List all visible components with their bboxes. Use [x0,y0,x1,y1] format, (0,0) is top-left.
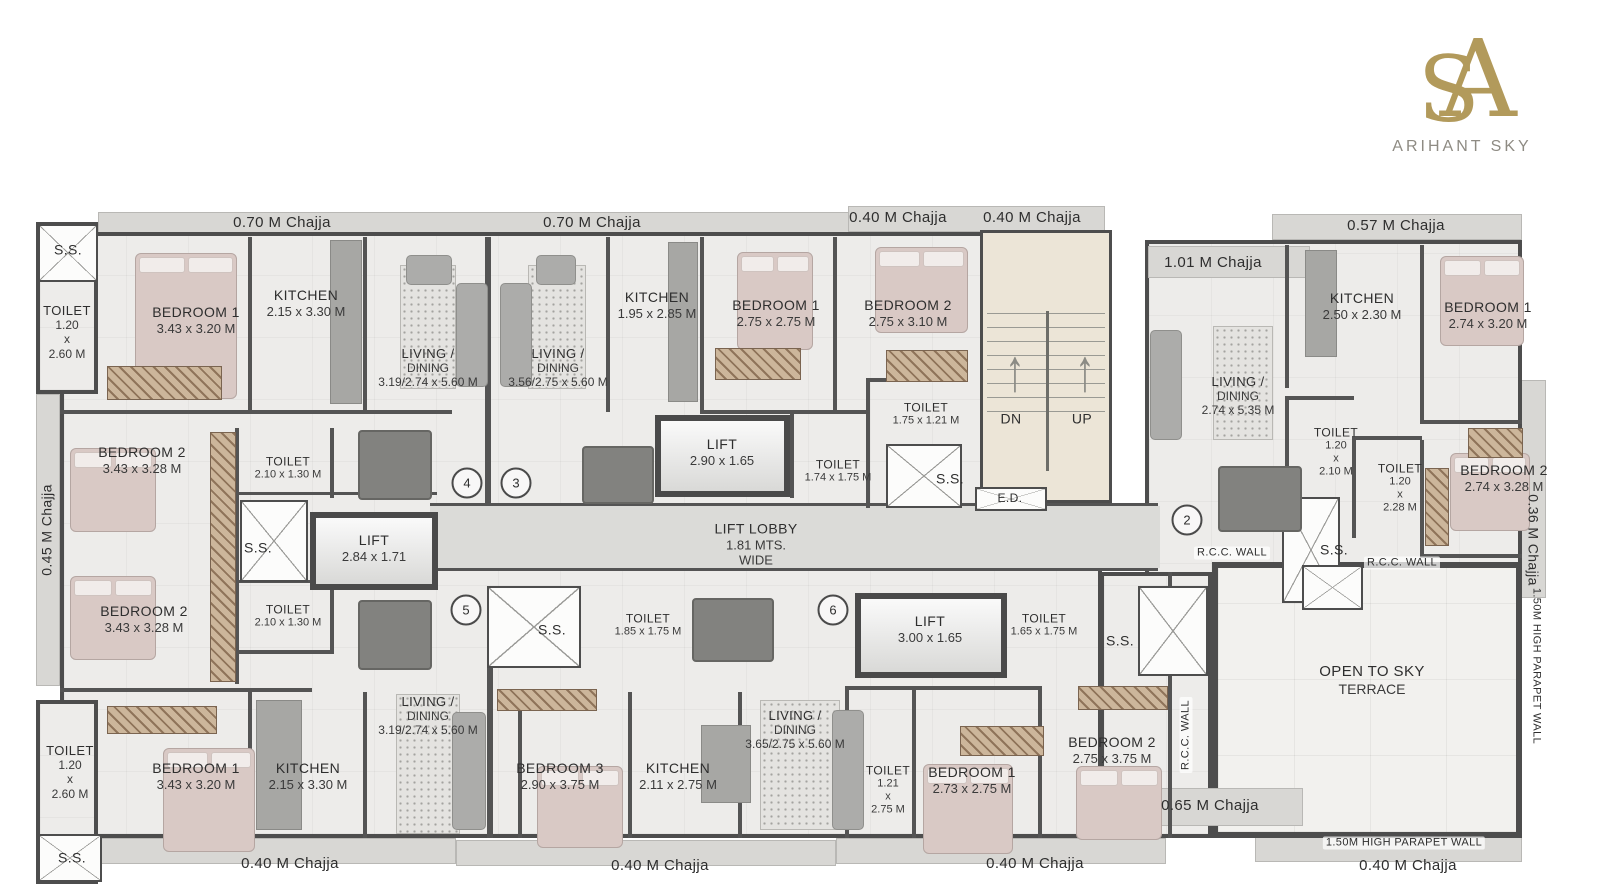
living-right: LIVING /DINING2.74 x 5.35 M [1202,374,1275,418]
bed-pillows [1444,260,1520,276]
wardrobe [210,432,236,682]
bedroom1-top-left: BEDROOM 13.43 x 3.20 M [152,304,240,336]
wall [1420,245,1424,422]
chajja-top-3: 0.40 M Chajja [849,209,947,227]
stairs-dn: DN [1000,411,1021,428]
toilet-mid: TOILET1.74 x 1.75 M [805,457,872,484]
floor-plan: ↑↑0.70 M Chajja0.70 M Chajja0.40 M Chajj… [0,0,1600,889]
chajja-bottom-3: 0.40 M Chajja [986,855,1084,873]
flat-number-6: 6 [818,595,849,626]
wall [248,237,252,412]
wardrobe [960,726,1044,756]
terrace-label: OPEN TO SKYTERRACE [1319,663,1425,697]
bedroom3-bottom: BEDROOM 32.90 x 3.75 M [516,760,604,792]
wall [912,686,916,838]
ss-top-left: S.S. [54,242,82,259]
bedroom2-top: BEDROOM 22.75 x 3.10 M [864,297,952,329]
wardrobe [1078,686,1168,710]
bedroom1-bottom-center: BEDROOM 12.73 x 2.75 M [928,764,1016,796]
wardrobe [886,350,968,382]
dining-table [1218,466,1302,532]
floor-plan-page: S A ARIHANT SKY ↑↑0.70 M Chajja0.70 M Ch… [0,0,1600,889]
wall [1038,686,1042,838]
bed [1076,766,1162,840]
kitchen-top-left: KITCHEN2.15 x 3.30 M [267,287,346,319]
sofa [536,255,576,285]
wall [363,692,367,838]
chajja-bottom-2: 0.40 M Chajja [611,857,709,875]
chajja-top-1: 0.70 M Chajja [233,214,331,232]
ss-right: S.S. [1320,542,1348,559]
chajja-right-upper: 1.01 M Chajja [1164,254,1262,272]
ss-bottom-left: S.S. [58,850,86,867]
wall [330,428,334,498]
bed-pillows [879,251,964,267]
bedroom1-top: BEDROOM 12.75 x 2.75 M [732,297,820,329]
chajja-top-4: 0.40 M Chajja [983,209,1081,227]
wall [235,650,333,654]
parapet-right-vertical: 1.50M HIGH PARAPET WALL [1530,588,1543,744]
wardrobe [107,706,217,734]
lift-left: LIFT2.84 x 1.71 [342,532,406,564]
flat-number-3: 3 [501,468,532,499]
sofa [406,255,452,285]
dining-table [358,600,432,670]
wall [1285,245,1289,388]
wall [487,664,493,838]
kitchen-bottom-center: KITCHEN2.11 x 2.75 M [639,760,717,792]
chajja-bottom-4: 0.40 M Chajja [1359,857,1457,875]
wall [60,688,312,692]
lift-bottom: LIFT3.00 x 1.65 [898,613,962,645]
toilet-top-left: TOILET1.20x2.60 M [43,303,91,361]
stair-direction-arrow-icon: ↑ [1075,341,1095,401]
ss-stairs: S.S. [936,471,964,488]
dining-table [692,598,774,662]
service-shaft [1302,565,1363,610]
living-top-1: LIVING /DINING3.19/2.74 x 5.60 M [378,346,477,390]
stairs-up: UP [1072,411,1092,428]
wardrobe [1425,468,1449,546]
toilet-center-1: TOILET1.85 x 1.75 M [615,611,682,638]
bedroom2-right: BEDROOM 22.74 x 3.28 M [1460,462,1548,494]
rcc-wall-vertical: R.C.C. WALL [1180,697,1193,773]
bed-pillows [1080,770,1158,786]
living-bottom-2: LIVING /DINING3.65/2.75 x 5.60 M [745,708,844,752]
toilet-top: TOILET1.75 x 1.21 M [893,400,960,427]
rcc-wall-h1: R.C.C. WALL [1194,547,1270,560]
wall [628,692,632,838]
chajja-top-right: 0.57 M Chajja [1347,217,1445,235]
kitchen-counter [668,242,698,402]
bedroom2-left-1: BEDROOM 23.43 x 3.28 M [98,444,186,476]
wardrobe [107,366,222,400]
kitchen-bottom-left: KITCHEN2.15 x 3.30 M [269,760,348,792]
lift-lobby: LIFT LOBBY1.81 MTS.WIDE [714,520,797,567]
wall [363,237,367,412]
ss-left-mid: S.S. [244,540,272,557]
stair-rail [1046,311,1049,471]
bedroom2-left-2: BEDROOM 23.43 x 3.28 M [100,603,188,635]
flat-number-4: 4 [452,468,483,499]
flat-number-5: 5 [451,595,482,626]
wall [430,503,1158,506]
chajja-left-vertical: 0.45 M Chajja [39,484,56,576]
kitchen-right: KITCHEN2.50 x 2.30 M [1323,290,1402,322]
living-bottom-1: LIVING /DINING3.19/2.74 x 5.60 M [378,694,477,738]
kitchen-counter [330,240,362,404]
wall [845,686,1041,690]
toilet-left-2: TOILET2.10 x 1.30 M [255,602,322,629]
wall [1352,436,1422,440]
flat-number-2: 2 [1172,505,1203,536]
chajja-bottom-65: 0.65 M Chajja [1161,797,1259,815]
wall [60,410,452,414]
chajja-bottom-1: 0.40 M Chajja [241,855,339,873]
bed-pillows [741,256,809,272]
wardrobe [497,689,597,711]
wall [700,410,866,414]
service-shaft [1138,586,1208,676]
wall [833,237,837,412]
lift-top: LIFT2.90 x 1.65 [690,436,754,468]
living-top-2: LIVING /DINING3.56/2.75 x 5.60 M [508,346,607,390]
parapet-bottom: 1.50M HIGH PARAPET WALL [1323,837,1485,850]
staircase: ↑↑ [980,230,1112,503]
dining-table [582,446,654,504]
bed-pillows [74,580,152,596]
kitchen-top-2: KITCHEN1.95 x 2.85 M [618,289,697,321]
ed-duct: E.D. [998,491,1023,505]
dining-table [358,430,432,500]
toilet-right-2: TOILET1.20x2.28 M [1378,461,1422,514]
wall [330,582,334,654]
stair-direction-arrow-icon: ↑ [1005,341,1025,401]
bedroom1-bottom-left: BEDROOM 13.43 x 3.20 M [152,760,240,792]
bedroom1-right: BEDROOM 12.74 x 3.20 M [1444,299,1532,331]
toilet-left-1: TOILET2.10 x 1.30 M [255,454,322,481]
chajja-right-vertical: 0.36 M Chajja [1525,494,1542,586]
ss-center-2: S.S. [1106,633,1134,650]
chajja-top-2: 0.70 M Chajja [543,214,641,232]
wall [700,237,704,412]
wall [790,414,794,498]
ss-center-1: S.S. [538,622,566,639]
wardrobe [1468,428,1523,458]
toilet-center-2: TOILET1.65 x 1.75 M [1011,611,1078,638]
toilet-bottom-center: TOILET1.21x2.75 M [866,763,910,816]
sofa [1150,330,1182,440]
bedroom2-bottom-center: BEDROOM 22.75 x 3.75 M [1068,734,1156,766]
wall [866,382,870,508]
rcc-wall-h2: R.C.C. WALL [1364,557,1440,570]
wardrobe [715,348,801,380]
wall [1288,396,1354,400]
bed-pillows [139,257,233,273]
wall [1420,420,1522,424]
toilet-right-1: TOILET1.20x2.10 M [1314,425,1358,478]
wall [430,568,1158,571]
toilet-bottom-left: TOILET1.20x2.60 M [46,743,94,801]
service-shaft [487,586,581,668]
